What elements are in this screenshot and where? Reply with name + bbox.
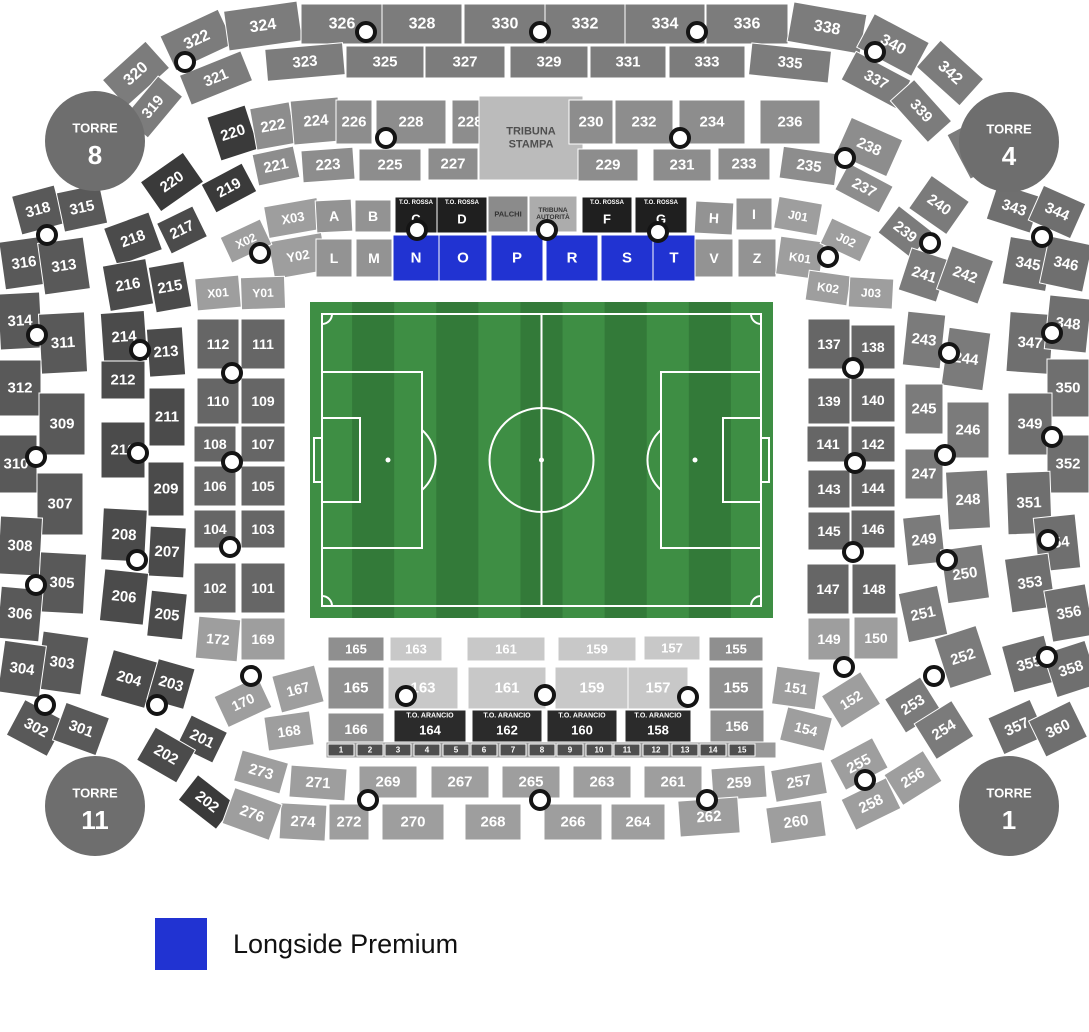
section-label: 223	[315, 156, 341, 175]
section-159[interactable]: 159	[555, 667, 629, 709]
gate-marker	[671, 129, 689, 147]
gate-marker	[408, 221, 426, 239]
section-A[interactable]: A	[315, 199, 353, 233]
section-148[interactable]: 148	[852, 564, 896, 614]
gate-marker	[836, 149, 854, 167]
section-251[interactable]: 251	[898, 585, 948, 642]
section-label: 323	[292, 52, 318, 71]
section-label: 349	[1017, 416, 1042, 433]
gate-marker	[938, 551, 956, 569]
section-L[interactable]: L	[316, 239, 352, 277]
section-168[interactable]: 168	[264, 711, 314, 751]
section-label: 141	[816, 436, 840, 452]
section-304[interactable]: 304	[0, 640, 46, 697]
section-165[interactable]: 165	[328, 637, 384, 661]
section-label: 110	[207, 393, 230, 409]
section-212[interactable]: 212	[101, 361, 145, 399]
section-label: 145	[817, 523, 841, 539]
section-1[interactable]: 1	[328, 744, 354, 756]
section-label: 206	[111, 587, 138, 607]
section-207[interactable]: 207	[148, 526, 187, 578]
section-161[interactable]: 161	[468, 667, 546, 709]
section-150[interactable]: 150	[854, 617, 898, 659]
section-226[interactable]: 226	[336, 100, 372, 144]
section-label: T.O. ROSSA	[644, 200, 679, 206]
section-329[interactable]: 329	[510, 46, 588, 78]
section-166[interactable]: 166	[328, 713, 384, 745]
section-143[interactable]: 143	[808, 470, 850, 508]
section-15[interactable]: 15	[729, 744, 755, 756]
section-243[interactable]: 243	[902, 311, 945, 369]
stadium-seat-map-page: 3223243263283303323343363383403203423213…	[0, 0, 1089, 1032]
section-label: T.O. ARANCIO	[634, 713, 682, 720]
section-label: 272	[336, 814, 361, 831]
section-TRIBUNA STAMPA[interactable]: TRIBUNASTAMPA	[479, 96, 583, 180]
section-Y01[interactable]: Y01	[240, 276, 285, 310]
section-label: A	[329, 208, 340, 225]
section-9[interactable]: 9	[557, 744, 583, 756]
section-O[interactable]: O	[439, 235, 487, 281]
section-label: 236	[777, 114, 802, 131]
section-172[interactable]: 172	[195, 616, 241, 662]
section-label: 165	[343, 680, 368, 697]
section-label: 211	[155, 409, 179, 426]
section-label: 353	[1016, 573, 1043, 593]
section-338[interactable]: 338	[787, 2, 867, 54]
section-137[interactable]: 137	[808, 319, 850, 369]
gate-marker	[28, 326, 46, 344]
section-label: 303	[48, 653, 75, 673]
gate-marker	[176, 53, 194, 71]
section-235[interactable]: 235	[779, 146, 839, 185]
section-label: 1	[1002, 805, 1016, 835]
section-label: V	[709, 250, 719, 266]
section-label: 233	[731, 156, 756, 173]
section-label: STAMPA	[509, 138, 554, 150]
section-label: 139	[817, 393, 841, 409]
section-label: 161	[494, 680, 519, 697]
section-224[interactable]: 224	[290, 97, 342, 145]
section-271[interactable]: 271	[289, 765, 347, 801]
section-232[interactable]: 232	[615, 100, 673, 144]
section-label: TRIBUNA	[538, 207, 568, 214]
gate-marker	[27, 576, 45, 594]
section-label: 7	[511, 746, 516, 755]
section-label: 11	[623, 746, 632, 755]
section-12[interactable]: 12	[643, 744, 669, 756]
gate-marker	[536, 686, 554, 704]
section-label: 157	[661, 641, 683, 656]
section-label: 137	[817, 336, 841, 352]
section-206[interactable]: 206	[99, 569, 148, 625]
section-label: 224	[303, 111, 330, 130]
section-112[interactable]: 112	[197, 319, 239, 369]
section-356[interactable]: 356	[1044, 584, 1089, 643]
section-I[interactable]: I	[736, 198, 772, 230]
section-5[interactable]: 5	[443, 744, 469, 756]
section-333[interactable]: 333	[669, 46, 745, 78]
section-J03[interactable]: J03	[848, 277, 894, 309]
section-Z[interactable]: Z	[738, 239, 776, 277]
section-308[interactable]: 308	[0, 516, 42, 576]
section-label: 268	[480, 814, 505, 831]
gate-marker	[925, 667, 943, 685]
section-323[interactable]: 323	[265, 43, 345, 82]
section-label: T.O. ARANCIO	[406, 713, 454, 720]
section-216[interactable]: 216	[102, 259, 153, 312]
section-label: 229	[595, 157, 620, 174]
gate-marker	[357, 23, 375, 41]
section-225[interactable]: 225	[359, 149, 421, 181]
section-PALCHI[interactable]: PALCHI	[488, 196, 528, 232]
section-263[interactable]: 263	[573, 766, 631, 798]
section-label: 208	[111, 526, 137, 544]
section-label: T.O. ROSSA	[445, 200, 480, 206]
section-M[interactable]: M	[356, 239, 392, 277]
section-165[interactable]: 165	[328, 667, 384, 709]
section-8[interactable]: 8	[529, 744, 555, 756]
section-227[interactable]: 227	[428, 148, 478, 180]
section-label: 207	[154, 543, 180, 561]
section-label: 243	[911, 330, 938, 350]
section-13[interactable]: 13	[672, 744, 698, 756]
section-label: 163	[405, 642, 427, 657]
section-154[interactable]: 154	[780, 707, 833, 751]
section-label: 156	[725, 718, 749, 734]
section-245[interactable]: 245	[905, 384, 943, 434]
section-360[interactable]: 360	[1029, 701, 1088, 757]
section-102[interactable]: 102	[194, 563, 236, 613]
gate-marker	[531, 23, 549, 41]
section-267[interactable]: 267	[431, 766, 489, 798]
section-158[interactable]: T.O. ARANCIO158	[625, 710, 691, 742]
section-324[interactable]: 324	[224, 1, 303, 51]
section-155[interactable]: 155	[709, 637, 763, 661]
section-label: 269	[375, 774, 400, 791]
gate-marker	[844, 359, 862, 377]
section-label: 330	[492, 16, 519, 33]
section-332[interactable]: 332	[545, 4, 625, 44]
section-label: 227	[440, 156, 465, 173]
section-label: 164	[419, 723, 441, 738]
section-2[interactable]: 2	[357, 744, 383, 756]
section-label: 336	[734, 16, 761, 33]
section-309[interactable]: 309	[39, 393, 85, 455]
section-213[interactable]: 213	[146, 327, 185, 377]
section-221[interactable]: 221	[252, 146, 300, 186]
section-111[interactable]: 111	[241, 319, 285, 369]
section-273[interactable]: 273	[234, 750, 289, 794]
section-169[interactable]: 169	[241, 618, 285, 660]
section-label: T.O. ROSSA	[399, 200, 434, 206]
section-315[interactable]: 315	[56, 184, 107, 232]
gate-marker	[679, 688, 697, 706]
section-103[interactable]: 103	[241, 510, 285, 548]
section-label: 225	[377, 157, 402, 174]
section-156[interactable]: 156	[710, 710, 764, 742]
gate-marker	[846, 454, 864, 472]
section-label: 104	[203, 521, 227, 537]
section-218[interactable]: 218	[104, 212, 163, 266]
section-label: 146	[861, 521, 885, 537]
section-242[interactable]: 242	[936, 246, 993, 304]
section-105[interactable]: 105	[241, 466, 285, 506]
section-label: H	[709, 210, 720, 227]
section-label: 232	[631, 114, 656, 131]
section-label: 101	[251, 580, 275, 596]
section-N[interactable]: N	[393, 235, 439, 281]
section-label: 263	[589, 774, 614, 791]
section-270[interactable]: 270	[382, 804, 444, 840]
section-311[interactable]: 311	[38, 312, 87, 374]
gate-marker	[377, 129, 395, 147]
gate-marker	[698, 791, 716, 809]
section-label: TORRE	[986, 786, 1032, 801]
torre-8: TORRE8	[45, 91, 145, 191]
section-label: 108	[203, 436, 227, 452]
section-261[interactable]: 261	[644, 766, 702, 798]
section-label: 231	[669, 157, 694, 174]
section-260[interactable]: 260	[766, 800, 826, 843]
section-J01[interactable]: J01	[774, 196, 823, 235]
section-label: 234	[699, 114, 725, 131]
gate-marker	[223, 453, 241, 471]
section-159[interactable]: 159	[558, 637, 636, 661]
section-3[interactable]: 3	[385, 744, 411, 756]
section-S[interactable]: S	[601, 235, 653, 281]
section-264[interactable]: 264	[611, 804, 665, 840]
section-7[interactable]: 7	[500, 744, 526, 756]
section-label: 350	[1055, 380, 1080, 397]
section-label: 155	[725, 642, 747, 657]
section-219[interactable]: 219	[201, 163, 257, 213]
section-163[interactable]: 163	[390, 637, 442, 661]
section-307[interactable]: 307	[37, 473, 83, 535]
section-label: 212	[110, 372, 135, 389]
gate-marker	[835, 658, 853, 676]
section-167[interactable]: 167	[272, 665, 324, 713]
section-label: 3	[396, 746, 401, 755]
section-label: 2	[368, 746, 373, 755]
gate-marker	[27, 448, 45, 466]
section-label: 209	[153, 481, 178, 498]
section-label: 311	[50, 334, 75, 352]
section-155[interactable]: 155	[709, 667, 763, 709]
section-label: 162	[496, 723, 518, 738]
section-101[interactable]: 101	[241, 563, 285, 613]
section-6[interactable]: 6	[471, 744, 497, 756]
section-label: 335	[777, 53, 804, 73]
gate-marker	[844, 543, 862, 561]
section-266[interactable]: 266	[544, 804, 602, 840]
section-label: 157	[645, 680, 670, 697]
section-164[interactable]: T.O. ARANCIO164	[394, 710, 466, 742]
section-151[interactable]: 151	[772, 666, 821, 710]
torre-1: TORRE1	[959, 756, 1059, 856]
gate-marker	[866, 43, 884, 61]
section-label: 316	[10, 253, 37, 273]
section-274[interactable]: 274	[279, 803, 327, 841]
section-label: 11	[81, 805, 109, 835]
section-label: 245	[911, 401, 936, 418]
section-label: 312	[7, 380, 32, 397]
section-label: 333	[694, 54, 719, 71]
gate-marker	[38, 226, 56, 244]
section-160[interactable]: T.O. ARANCIO160	[547, 710, 617, 742]
section-label: O	[457, 250, 469, 267]
section-312[interactable]: 312	[0, 360, 41, 416]
section-X01[interactable]: X01	[195, 275, 242, 311]
section-236[interactable]: 236	[760, 100, 820, 144]
section-label: 168	[276, 721, 302, 740]
section-301[interactable]: 301	[53, 702, 110, 755]
section-label: 172	[206, 630, 231, 648]
section-V[interactable]: V	[695, 239, 733, 277]
section-label: S	[622, 250, 632, 267]
section-label: 249	[911, 530, 938, 550]
section-K02[interactable]: K02	[805, 270, 851, 306]
section-label: 140	[861, 392, 885, 408]
section-label: 112	[207, 336, 230, 352]
section-265[interactable]: 265	[502, 766, 560, 798]
section-331[interactable]: 331	[590, 46, 666, 78]
section-label: P	[512, 250, 522, 267]
section-229[interactable]: 229	[578, 149, 638, 181]
section-label: 271	[305, 774, 331, 793]
section-335[interactable]: 335	[749, 43, 832, 83]
section-327[interactable]: 327	[425, 46, 505, 78]
section-label: 230	[578, 114, 603, 131]
section-11[interactable]: 11	[614, 744, 640, 756]
section-X03[interactable]: X03	[264, 198, 323, 239]
gate-marker	[242, 667, 260, 685]
section-110[interactable]: 110	[197, 378, 239, 424]
section-144[interactable]: 144	[851, 469, 895, 507]
section-label: X01	[207, 285, 230, 301]
gate-marker	[1043, 324, 1061, 342]
section-label: T	[669, 250, 678, 267]
section-220[interactable]: 220	[140, 152, 203, 211]
section-205[interactable]: 205	[147, 590, 188, 640]
section-P[interactable]: P	[491, 235, 543, 281]
section-276[interactable]: 276	[222, 788, 282, 841]
gate-marker	[148, 696, 166, 714]
section-107[interactable]: 107	[241, 426, 285, 462]
section-336[interactable]: 336	[706, 4, 788, 44]
section-label: B	[368, 208, 378, 224]
section-10[interactable]: 10	[586, 744, 612, 756]
section-157[interactable]: 157	[644, 636, 700, 660]
section-label: 310	[3, 456, 28, 473]
section-233[interactable]: 233	[718, 148, 770, 180]
section-label: 166	[344, 721, 368, 737]
section-H[interactable]: H	[694, 201, 734, 235]
section-209[interactable]: 209	[148, 462, 184, 516]
gate-marker	[856, 771, 874, 789]
section-label: TORRE	[986, 122, 1032, 137]
football-pitch	[310, 302, 773, 618]
section-label: 105	[251, 478, 275, 494]
section-label: 259	[726, 774, 752, 793]
section-259[interactable]: 259	[711, 765, 767, 801]
section-label: 248	[955, 491, 981, 509]
section-label: 246	[955, 422, 980, 439]
section-257[interactable]: 257	[771, 762, 828, 803]
section-label: 111	[252, 336, 274, 352]
section-325[interactable]: 325	[346, 46, 424, 78]
section-label: I	[752, 206, 756, 222]
section-268[interactable]: 268	[465, 804, 521, 840]
section-328[interactable]: 328	[382, 4, 462, 44]
section-label: F	[603, 212, 611, 227]
gate-marker	[1039, 531, 1057, 549]
stadium-map: 3223243263283303323343363383403203423213…	[0, 0, 1089, 880]
section-222[interactable]: 222	[250, 102, 297, 150]
section-217[interactable]: 217	[157, 206, 208, 254]
section-label: TORRE	[72, 786, 118, 801]
section-label: 109	[251, 393, 275, 409]
section-label: 155	[723, 680, 748, 697]
section-label: 159	[579, 680, 604, 697]
section-4[interactable]: 4	[414, 744, 440, 756]
section-350[interactable]: 350	[1047, 359, 1089, 417]
section-109[interactable]: 109	[241, 378, 285, 424]
section-145[interactable]: 145	[808, 512, 850, 550]
section-label: 138	[861, 339, 885, 355]
section-F[interactable]: T.O. ROSSAF	[582, 197, 632, 233]
section-140[interactable]: 140	[851, 378, 895, 422]
section-label: M	[368, 250, 380, 266]
section-label: 142	[861, 436, 885, 452]
section-label: 307	[47, 496, 72, 513]
section-label: Z	[753, 250, 762, 266]
section-149[interactable]: 149	[808, 618, 850, 660]
section-label: D	[457, 212, 466, 227]
section-label: 150	[864, 630, 888, 646]
section-label: 266	[560, 814, 585, 831]
section-B[interactable]: B	[355, 200, 391, 232]
section-label: 102	[203, 580, 227, 596]
section-211[interactable]: 211	[149, 388, 185, 446]
section-label: 228	[398, 114, 423, 131]
section-label: 334	[652, 16, 679, 33]
gate-marker	[819, 248, 837, 266]
section-231[interactable]: 231	[653, 149, 711, 181]
section-170[interactable]: 170	[214, 676, 272, 727]
section-147[interactable]: 147	[807, 564, 849, 614]
section-248[interactable]: 248	[946, 470, 991, 530]
section-161[interactable]: 161	[467, 637, 545, 661]
section-label: 264	[625, 814, 651, 831]
section-R[interactable]: R	[546, 235, 598, 281]
section-230[interactable]: 230	[569, 100, 613, 144]
section-label: 351	[1016, 494, 1042, 512]
section-label: 13	[681, 746, 690, 755]
section-162[interactable]: T.O. ARANCIO162	[472, 710, 542, 742]
section-139[interactable]: 139	[808, 378, 850, 424]
section-label: AUTORITÀ	[536, 212, 570, 221]
section-label: 313	[50, 256, 77, 276]
section-label: 226	[341, 114, 366, 131]
section-215[interactable]: 215	[148, 261, 191, 313]
section-223[interactable]: 223	[301, 147, 355, 183]
section-label: 347	[1017, 334, 1043, 353]
gate-marker	[688, 23, 706, 41]
section-D[interactable]: T.O. ROSSAD	[437, 197, 487, 233]
section-label: 306	[7, 604, 33, 623]
section-141[interactable]: 141	[807, 426, 849, 462]
section-14[interactable]: 14	[700, 744, 726, 756]
